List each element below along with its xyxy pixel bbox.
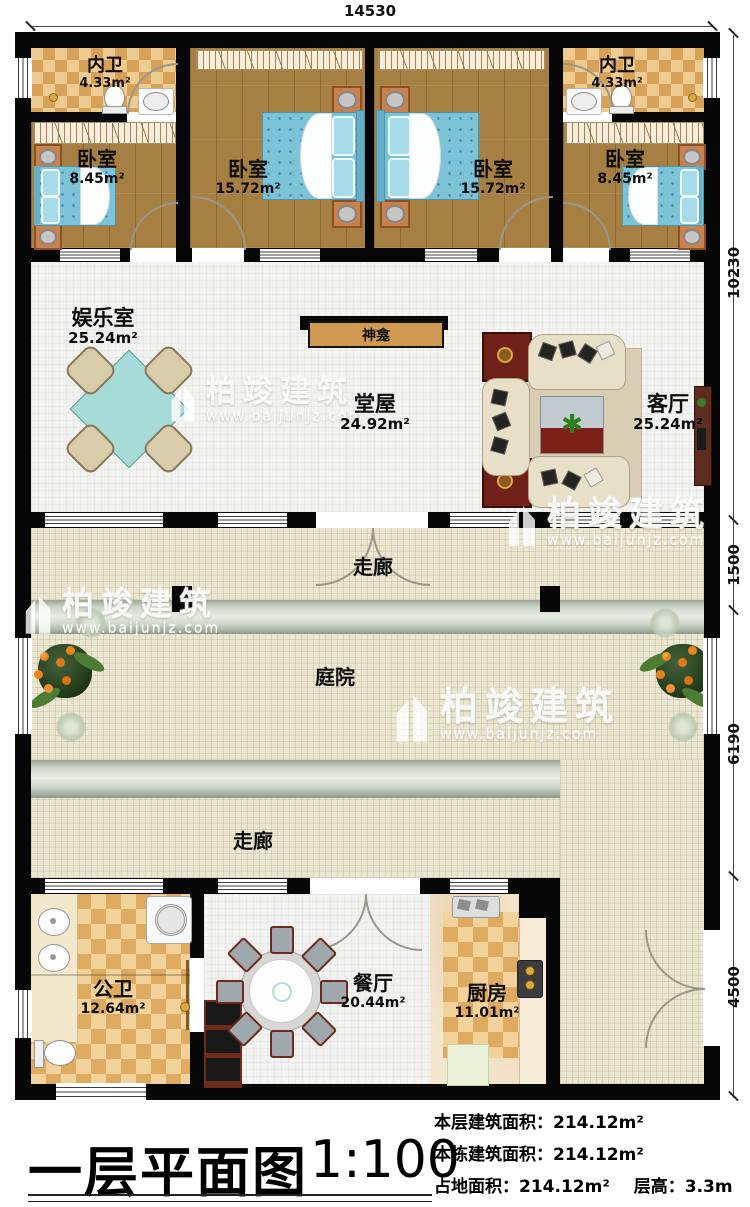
cushion xyxy=(541,469,559,487)
sideboard-cabinet xyxy=(204,1000,242,1088)
window xyxy=(218,879,287,893)
title-underline xyxy=(28,1194,432,1202)
kitchen-pier xyxy=(519,894,545,918)
door-gap xyxy=(130,248,176,262)
dimension-right-3: 6190 xyxy=(725,722,743,766)
sink-icon xyxy=(571,92,597,111)
door-gap xyxy=(190,958,204,1032)
wall-center xyxy=(365,48,374,262)
dining-table-center xyxy=(272,982,292,1002)
window xyxy=(630,249,690,261)
courtyard-floor xyxy=(31,634,704,760)
nightstand xyxy=(34,224,62,250)
window xyxy=(703,638,721,734)
room-label-corridor-top: 走廊 xyxy=(338,556,408,579)
pillow xyxy=(332,158,355,198)
plant-icon: ✱ xyxy=(561,412,583,438)
room-label-corridor-bottom: 走廊 xyxy=(218,830,288,853)
stat-land-area: 占地面积：214.12m²层高：3.3m xyxy=(434,1172,733,1197)
window xyxy=(550,513,620,527)
wardrobe xyxy=(33,122,176,144)
shrine: 神龛 xyxy=(308,321,444,348)
room-label-kitchen: 厨房 11.01m² xyxy=(442,982,532,1021)
nightstand xyxy=(332,200,362,228)
window xyxy=(45,879,163,893)
plant-fruit xyxy=(40,652,49,661)
dimension-top: 14530 xyxy=(330,2,410,20)
window xyxy=(14,58,32,98)
pillow xyxy=(388,158,411,198)
burner xyxy=(525,966,535,976)
chair xyxy=(270,1030,294,1058)
room-label-public-bath: 公卫 12.64m² xyxy=(68,978,158,1017)
sink-basin xyxy=(457,899,471,911)
pillow xyxy=(388,116,411,156)
outer-wall-left xyxy=(15,32,31,1100)
dimension-right-4: 4500 xyxy=(725,965,743,1009)
window xyxy=(640,513,698,527)
room-label-courtyard: 庭院 xyxy=(300,666,370,689)
window xyxy=(14,638,32,734)
nightstand xyxy=(678,224,706,250)
bed-headboard xyxy=(376,110,385,202)
plant-left xyxy=(28,608,128,748)
pillow xyxy=(41,196,60,224)
courtyard-path-bottom xyxy=(31,760,560,798)
wardrobe xyxy=(196,50,363,70)
wall-v1 xyxy=(176,48,190,262)
wardrobe xyxy=(565,122,704,144)
pier xyxy=(172,586,192,612)
coffee-table: ✱ xyxy=(540,396,604,454)
cushion xyxy=(491,389,509,407)
window xyxy=(450,879,508,893)
door-gap xyxy=(499,248,551,262)
flower-sprig xyxy=(76,608,106,638)
window xyxy=(56,1083,146,1101)
flower-sprig xyxy=(650,608,680,638)
window xyxy=(14,990,32,1038)
window xyxy=(60,249,120,261)
floor-plan: 14530 10230 1500 6190 4500 xyxy=(0,0,750,1207)
bed-headboard xyxy=(356,110,365,202)
pier xyxy=(540,586,560,612)
stat-floor-area: 本层建筑面积：214.12m² xyxy=(434,1108,644,1133)
side-table-lamp xyxy=(497,347,513,363)
window xyxy=(218,513,287,527)
toilet-base xyxy=(102,106,127,114)
stat-building-area: 本栋建筑面积：214.12m² xyxy=(434,1140,644,1165)
pillow xyxy=(680,196,699,224)
wardrobe xyxy=(378,50,545,70)
outer-wall-top xyxy=(15,32,720,48)
chair xyxy=(216,980,244,1004)
window xyxy=(450,513,517,527)
pillow xyxy=(680,169,699,197)
room-label-living: 客厅 25.24m² xyxy=(618,392,718,433)
window xyxy=(703,58,721,98)
room-label-bedroom-big-left: 卧室 15.72m² xyxy=(198,158,298,197)
room-label-bedroom-big-right: 卧室 15.72m² xyxy=(443,158,543,197)
pillow xyxy=(332,116,355,156)
flower-sprig xyxy=(56,712,86,742)
sink-icon xyxy=(143,92,169,111)
toilet-tank xyxy=(34,1040,44,1068)
lamp-icon xyxy=(688,93,697,102)
door-leaf xyxy=(186,960,189,1030)
plant-fruit xyxy=(662,652,671,661)
entry-door-gap xyxy=(703,930,721,1046)
dimension-right-1: 10230 xyxy=(725,255,743,299)
kitchen-corridor-wall xyxy=(545,878,560,1084)
flower-sprig xyxy=(668,712,698,742)
bath-divider-line xyxy=(31,974,190,976)
washing-machine-drum xyxy=(155,904,187,936)
window xyxy=(260,249,320,261)
dimension-right-2: 1500 xyxy=(725,543,743,587)
toilet-icon xyxy=(44,1040,76,1066)
door-gap xyxy=(563,248,609,262)
chair xyxy=(270,926,294,954)
window xyxy=(45,513,163,527)
courtyard-path-top xyxy=(31,600,704,634)
room-label-bedroom-small-left: 卧室 8.45m² xyxy=(52,148,142,187)
room-label-dining: 餐厅 20.44m² xyxy=(328,972,418,1011)
door-handle xyxy=(180,1002,190,1012)
toilet-base xyxy=(609,106,634,114)
room-label-hall: 堂屋 24.92m² xyxy=(325,392,425,433)
bed-headboard xyxy=(34,166,40,224)
room-label-bath-right: 内卫 4.33m² xyxy=(572,56,662,92)
nightstand xyxy=(380,200,410,228)
lamp-icon xyxy=(49,93,58,102)
window xyxy=(425,249,477,261)
door-gap xyxy=(310,878,420,894)
sink-drain xyxy=(50,918,56,924)
bed-blanket xyxy=(300,113,332,199)
room-label-bath-left: 内卫 4.33m² xyxy=(60,56,150,92)
room-label-bedroom-small-right: 卧室 8.45m² xyxy=(580,148,670,187)
kitchen-mat xyxy=(447,1044,489,1086)
door-gap xyxy=(192,248,244,262)
sink-basin xyxy=(475,899,489,911)
dimension-line-top xyxy=(30,26,714,27)
sink-drain xyxy=(50,954,56,960)
door-gap xyxy=(316,512,428,528)
room-label-entertainment: 娱乐室 25.24m² xyxy=(48,306,158,347)
